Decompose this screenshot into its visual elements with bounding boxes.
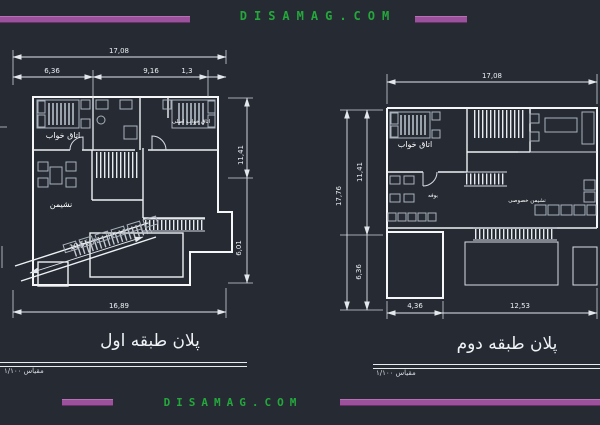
- plan-second-title: پلان طبقه دوم: [412, 334, 600, 354]
- dim-label: 11,41: [356, 162, 364, 182]
- cad-floorplan-sheet: { "banner_top": { "site": "DISAMAG.COM" …: [0, 0, 600, 425]
- room-label-private-living: نشیمن خصوصی: [508, 198, 546, 204]
- plan-second-furniture: [388, 112, 596, 221]
- plan-second-linework: [387, 108, 597, 298]
- dim-label: 17,76: [335, 185, 343, 206]
- room-label-master-bedroom: اتاق خواب اصلی: [172, 119, 211, 125]
- plan-first-title: پلان طبقه اول: [55, 331, 245, 351]
- dim-label: 6,36: [44, 67, 60, 75]
- dim-label: 12,53: [510, 302, 530, 310]
- dim-label: 11,41: [237, 145, 245, 165]
- dim-label: 17,08: [109, 47, 129, 55]
- room-label-bedroom: اتاق خواب: [398, 140, 432, 149]
- dim-label: 17,08: [482, 72, 502, 80]
- site-watermark-bottom: DISAMAG.COM: [133, 396, 333, 409]
- plan-first-scale-note: مقیاس ۱/۱۰۰: [4, 367, 44, 375]
- bottom-left-purple-bar: [62, 399, 113, 406]
- dim-label: 6,01: [235, 240, 243, 256]
- dim-label: 16,89: [109, 302, 129, 310]
- dim-label: 9,16: [143, 67, 159, 75]
- plan-first-linework: [15, 97, 232, 286]
- dim-label: 4,36: [407, 302, 423, 310]
- plan-first-furniture: [37, 100, 215, 187]
- bottom-right-purple-bar: [340, 399, 600, 406]
- room-label-bedroom: اتاق خواب: [46, 131, 80, 140]
- room-label-living: نشیمن: [50, 200, 73, 209]
- plan-second-scale-note: مقیاس ۱/۱۰۰: [376, 369, 416, 377]
- room-label-buffet: بوفه: [428, 193, 438, 199]
- dim-label: 1,3: [181, 67, 192, 75]
- dim-label: 6,36: [355, 264, 363, 280]
